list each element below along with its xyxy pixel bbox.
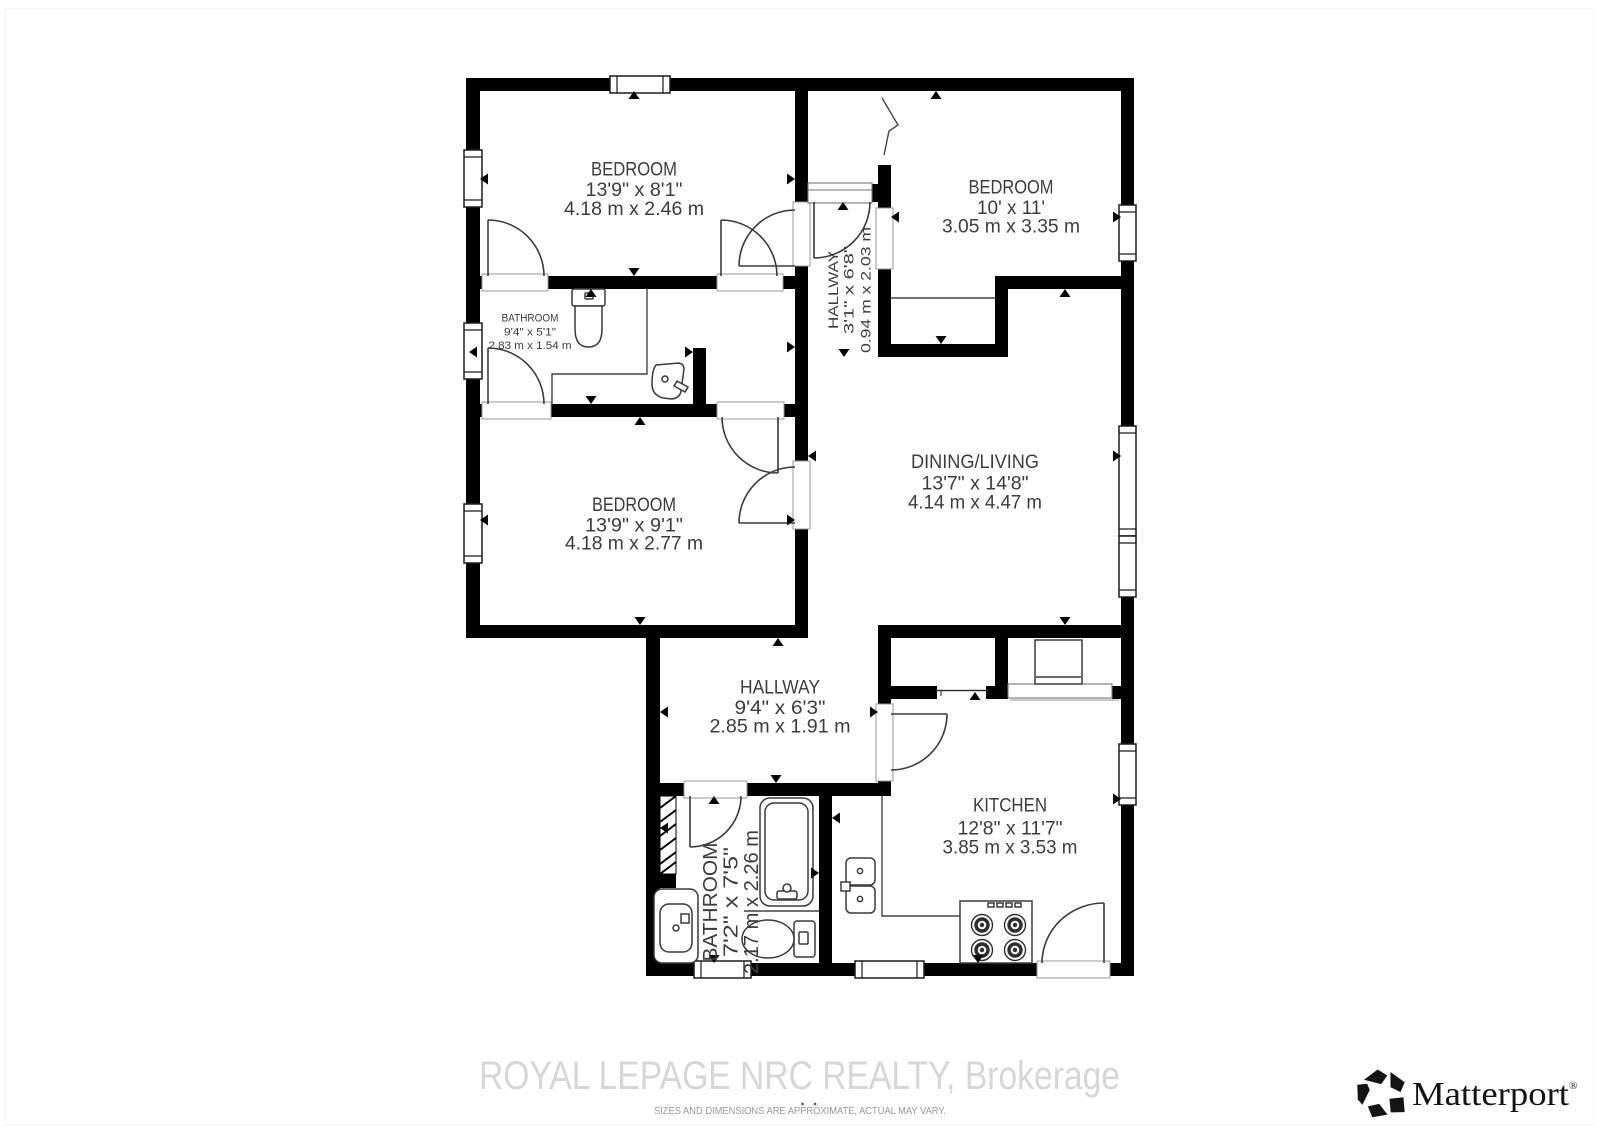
svg-text:3.85 m x 3.53 m: 3.85 m x 3.53 m <box>943 838 1078 859</box>
svg-text:®: ® <box>1569 1080 1577 1092</box>
svg-text:BEDROOM: BEDROOM <box>969 178 1054 199</box>
svg-text:12'8" x 11'7": 12'8" x 11'7" <box>958 819 1063 840</box>
svg-text:KITCHEN: KITCHEN <box>973 796 1047 817</box>
svg-text:SIZES AND DIMENSIONS ARE APPRO: SIZES AND DIMENSIONS ARE APPROXIMATE, AC… <box>654 1105 946 1117</box>
svg-text:9'4" x 5'1": 9'4" x 5'1" <box>504 327 556 339</box>
svg-text:BATHROOM: BATHROOM <box>502 313 559 325</box>
svg-text:3'1" x 6'8": 3'1" x 6'8" <box>841 246 857 334</box>
svg-text:3.05 m x 3.35 m: 3.05 m x 3.35 m <box>942 217 1080 238</box>
svg-text:13'7" x 14'8": 13'7" x 14'8" <box>922 474 1029 495</box>
svg-text:7'2" x 7'5": 7'2" x 7'5" <box>721 847 743 957</box>
svg-text:HALLWAY: HALLWAY <box>825 250 841 329</box>
svg-text:ROYAL LEPAGE NRC REALTY, Broke: ROYAL LEPAGE NRC REALTY, Brokerage <box>479 1054 1120 1098</box>
svg-text:Matterport: Matterport <box>1412 1076 1570 1113</box>
svg-text:HALLWAY: HALLWAY <box>740 678 820 699</box>
svg-text:0.94 m x 2.03 m: 0.94 m x 2.03 m <box>858 227 874 353</box>
svg-text:13'9" x 8'1": 13'9" x 8'1" <box>586 180 683 201</box>
svg-text:BEDROOM: BEDROOM <box>591 160 677 181</box>
svg-text:2.85 m x 1.91 m: 2.85 m x 1.91 m <box>710 717 851 738</box>
svg-text:4.14 m x 4.47 m: 4.14 m x 4.47 m <box>908 493 1042 514</box>
svg-text:4.18 m x 2.46 m: 4.18 m x 2.46 m <box>564 199 704 220</box>
svg-text:2.17 m x 2.26 m: 2.17 m x 2.26 m <box>741 830 763 974</box>
svg-text:BATHROOM: BATHROOM <box>700 843 722 962</box>
svg-text:2.83 m x 1.54 m: 2.83 m x 1.54 m <box>489 340 572 352</box>
svg-text:DINING/LIVING: DINING/LIVING <box>911 452 1039 473</box>
svg-text:BEDROOM: BEDROOM <box>592 495 676 516</box>
svg-text:4.18 m x 2.77 m: 4.18 m x 2.77 m <box>565 534 703 555</box>
